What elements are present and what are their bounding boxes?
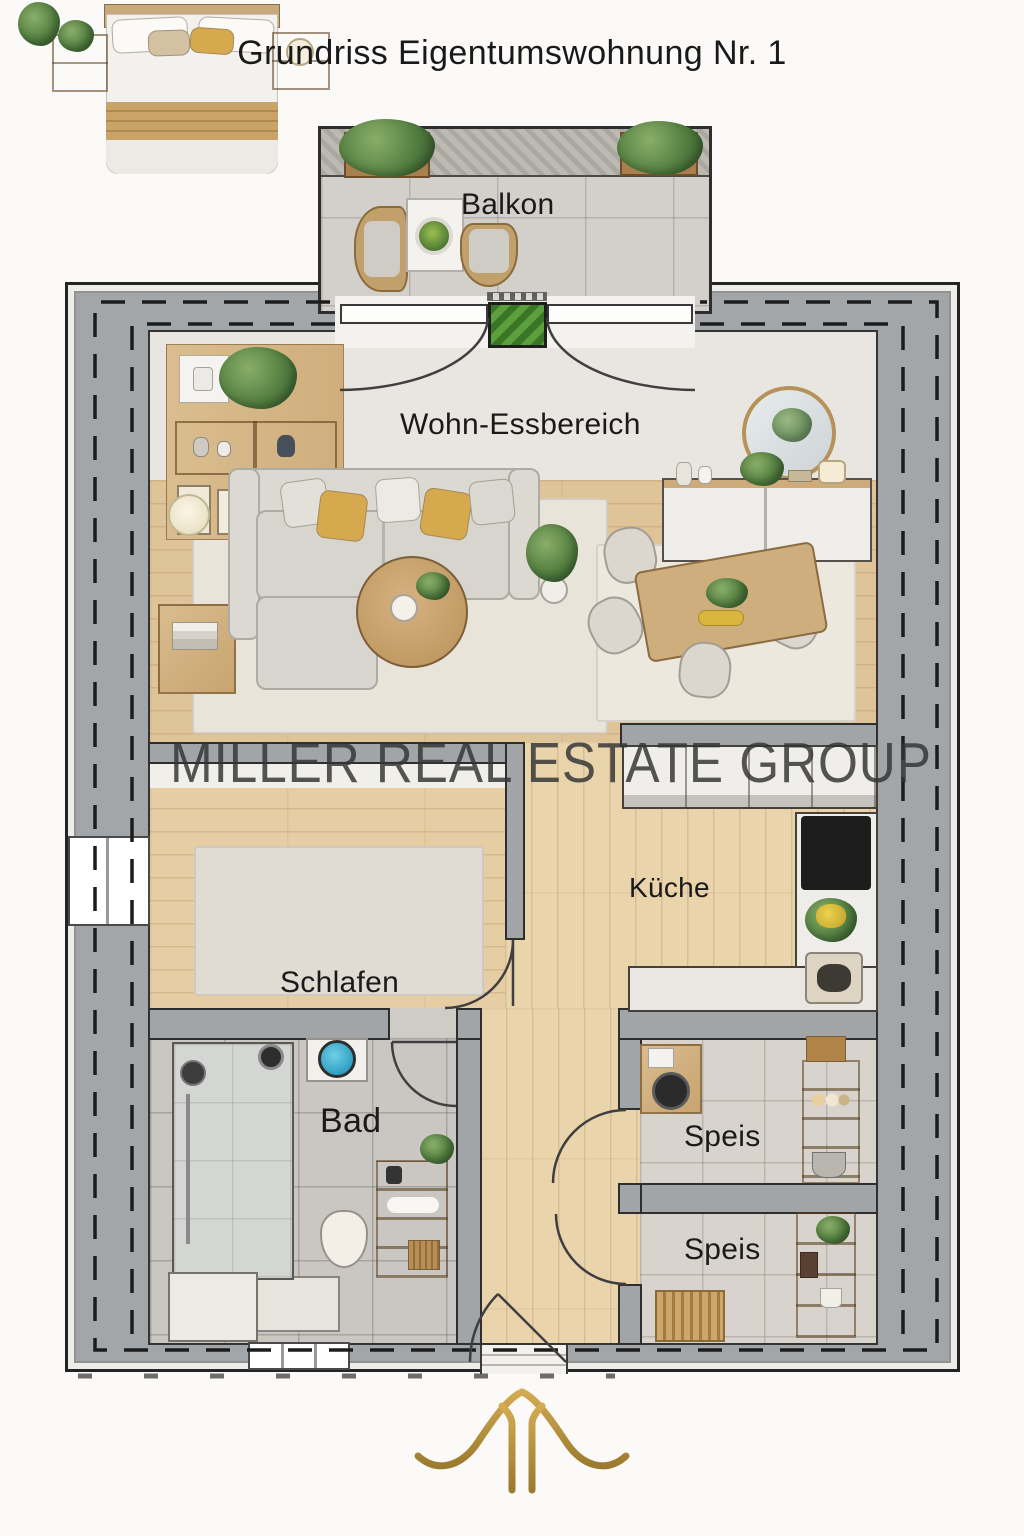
- doormat: [488, 302, 547, 348]
- chair-cushion: [469, 229, 509, 273]
- label-pantry-1: Speis: [684, 1120, 761, 1154]
- wall-pantry-left-upper: [618, 1038, 642, 1110]
- plant-icon: [339, 119, 435, 177]
- yellow-flowers: [816, 904, 846, 928]
- wall-bedroom-bathroom: [148, 1008, 390, 1040]
- towel-roll: [386, 1196, 440, 1214]
- pantry-basket-round: [652, 1072, 690, 1110]
- entrance-threshold: [480, 1345, 568, 1374]
- label-balcony: Balkon: [461, 188, 555, 222]
- bath-low-wall: [168, 1272, 258, 1342]
- shelf-jar: [193, 367, 213, 391]
- serving-tray: [698, 610, 744, 626]
- french-door-panel-left: [340, 304, 488, 324]
- book-stack: [172, 622, 218, 650]
- floor-lamp: [168, 494, 210, 536]
- plant-icon: [219, 347, 297, 409]
- plant-icon: [526, 524, 578, 582]
- brand-logo-gold-gable-icon: [400, 1378, 640, 1498]
- plant-icon: [706, 578, 748, 608]
- book-stack: [788, 470, 812, 482]
- french-door-panel-right: [547, 304, 693, 324]
- salad-plate: [415, 217, 453, 255]
- window-bedroom: [68, 836, 150, 926]
- vase: [676, 462, 692, 486]
- bed-foot-fold: [106, 140, 278, 174]
- wall-bathroom-corner: [456, 1008, 482, 1040]
- chair-cushion: [364, 221, 400, 277]
- label-bathroom: Bad: [320, 1102, 381, 1141]
- bath-low-wall: [252, 1276, 340, 1332]
- bathroom-sink: [318, 1040, 356, 1078]
- ceiling-light-icon: [258, 1044, 284, 1070]
- cooktop: [801, 816, 871, 890]
- shower-rod: [186, 1094, 190, 1244]
- jar: [386, 1166, 402, 1184]
- bed-throw-blanket: [106, 102, 278, 142]
- plant-icon: [416, 572, 450, 600]
- label-kitchen: Küche: [629, 872, 710, 904]
- pantry-jars: [810, 1092, 850, 1108]
- page-title: Grundriss Eigentumswohnung Nr. 1: [0, 34, 1024, 73]
- sofa-pillow-yellow: [419, 487, 474, 542]
- sofa-pillow: [468, 478, 516, 526]
- doormat-label-strip: [487, 292, 547, 301]
- mirror-reflection-plant: [772, 408, 812, 442]
- wall-pantry-left-lower: [618, 1284, 642, 1345]
- logo-left-leg: [502, 1406, 512, 1490]
- wall-pantry-divider: [640, 1183, 878, 1214]
- sofa-pillow-yellow: [315, 489, 368, 542]
- logo-gable-curve: [418, 1392, 626, 1466]
- vase: [217, 441, 231, 457]
- vase: [698, 466, 712, 484]
- bathroom-door-opening: [388, 1008, 458, 1040]
- wall-pantry-left-mid: [618, 1183, 642, 1214]
- shower-head-icon: [180, 1060, 206, 1086]
- label-pantry-2: Speis: [684, 1233, 761, 1267]
- balcony-door-threshold: [335, 296, 695, 348]
- table-lamp: [818, 460, 846, 484]
- watermark: MILLER REAL ESTATE GROUP: [170, 730, 854, 796]
- sofa-pillow: [375, 477, 422, 524]
- vase: [277, 435, 295, 457]
- label-bedroom: Schlafen: [280, 966, 399, 1000]
- logo-right-leg: [532, 1406, 542, 1490]
- sink-basin: [817, 964, 851, 992]
- wall-bathroom-right: [456, 1038, 482, 1345]
- window-bathroom: [248, 1342, 350, 1370]
- pantry-box: [648, 1048, 674, 1068]
- bucket: [812, 1152, 846, 1178]
- pantry-box: [806, 1036, 846, 1062]
- wicker-basket: [655, 1290, 725, 1342]
- plant-icon: [617, 121, 703, 175]
- plant-icon: [420, 1134, 454, 1164]
- pantry-books: [800, 1252, 818, 1278]
- plant-icon: [740, 452, 784, 486]
- storage-box: [408, 1240, 440, 1270]
- cup: [820, 1288, 842, 1308]
- vase: [193, 437, 209, 457]
- hallway-floor: [480, 1008, 640, 1345]
- teapot: [390, 594, 418, 622]
- plant-icon: [816, 1216, 850, 1244]
- floor-plan-page: Grundriss Eigentumswohnung Nr. 1: [0, 0, 1024, 1536]
- label-living-dining: Wohn-Essbereich: [400, 408, 641, 442]
